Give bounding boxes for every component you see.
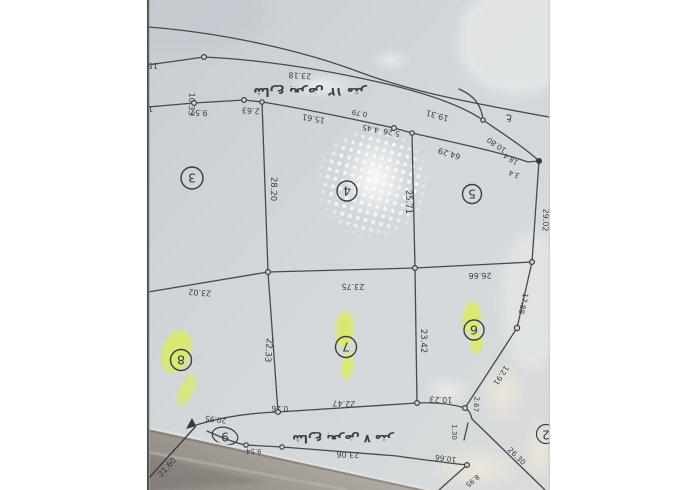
dimension-label: 25.71 [403, 190, 413, 214]
plot-number-8: 8 [177, 353, 185, 368]
dimension-label: 9.57 [190, 108, 208, 118]
dimension-label: 23.42 [418, 329, 428, 353]
dimension-label: 10.23 [429, 395, 452, 405]
dimension-label: 23.75 [341, 282, 364, 291]
dimension-label: 1.30 [450, 424, 458, 440]
dimension-label: 22.33 [262, 338, 274, 363]
plot-number-7: 7 [342, 340, 350, 355]
dimension-label: 28.20 [268, 177, 278, 202]
flash-dot-glare [313, 122, 435, 242]
plot-number-4: 4 [343, 184, 351, 199]
plot-number-6: 6 [470, 323, 478, 338]
ain-mark: ع [506, 114, 512, 125]
image-viewer-canvas: 3 4 5 8 7 6 9 2 15 23.18 10.33 1 9.57 [0, 0, 700, 490]
dimension-label: 26.66 [469, 271, 492, 280]
photo-left-edge [147, 0, 149, 490]
survey-map-drawing: 3 4 5 8 7 6 9 2 15 23.18 10.33 1 9.57 [147, 0, 550, 490]
street-bottom-label: شارع بعرض ٧ متر [292, 432, 395, 446]
plot-number-9: 9 [221, 430, 229, 445]
dimension-label: 2.67 [471, 396, 480, 412]
plot-number-3: 3 [188, 171, 196, 186]
survey-map-photo: 3 4 5 8 7 6 9 2 15 23.18 10.33 1 9.57 [147, 0, 550, 490]
dimension-label: 22.47 [332, 399, 355, 409]
junction-node [536, 158, 542, 164]
dimension-label: 2.63 [242, 105, 260, 115]
plot-number-5: 5 [468, 187, 476, 202]
street-top-label: شارع بعرض ١٢ متر [253, 85, 367, 99]
flash-flare [368, 49, 412, 71]
photo-right-edge [549, 0, 551, 490]
dimension-label: 23.02 [188, 287, 211, 298]
dimension-label: 23.06 [336, 450, 359, 460]
dimension-label: 23.18 [288, 70, 311, 80]
dimension-label: 9.54 [245, 447, 262, 456]
photo-left-edge-soft [149, 0, 150, 490]
